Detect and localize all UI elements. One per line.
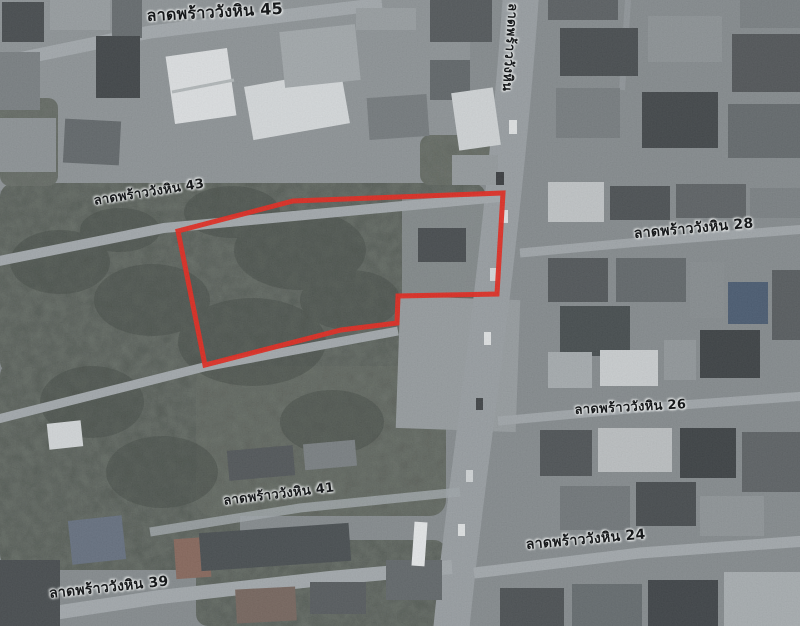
grain-overlay: [0, 0, 800, 626]
satellite-map-viewport[interactable]: ลาดพร้าววังหิน 45ลาดพร้าววังหิน 43ลาดพร้…: [0, 0, 800, 626]
satellite-imagery: [0, 0, 800, 626]
